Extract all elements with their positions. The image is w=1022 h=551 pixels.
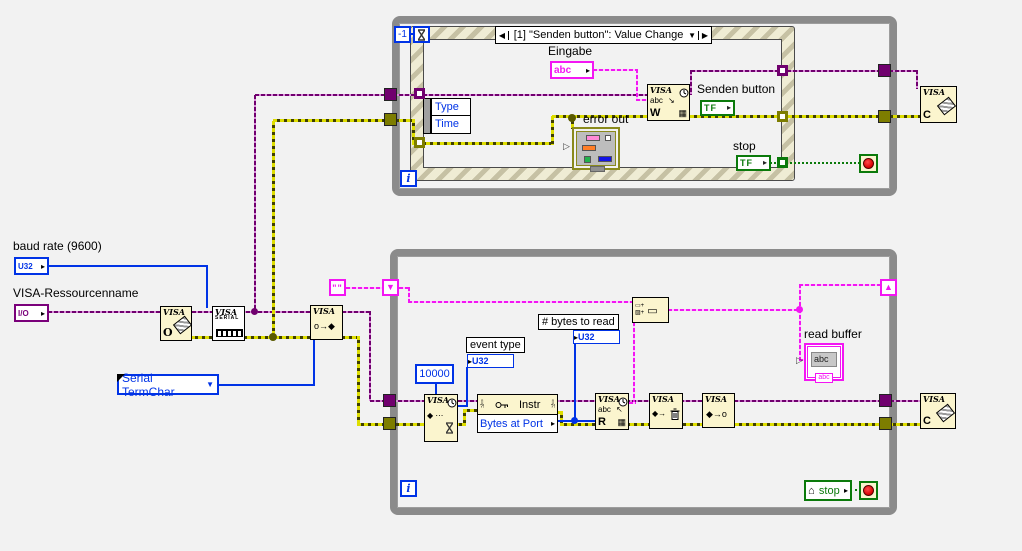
string-type-tag: abc	[815, 373, 833, 383]
visa-label: VISA	[313, 306, 335, 316]
event-data-type[interactable]: Type	[432, 99, 470, 116]
termchar-enum-value: Serial TermChar	[122, 371, 206, 399]
timeout-value: -1	[398, 29, 407, 40]
eingabe-terminal[interactable]: abc ▸	[550, 61, 594, 79]
dip-switch-icon	[216, 329, 243, 337]
stop-label: stop	[733, 140, 756, 153]
cluster-field-icon	[598, 156, 612, 162]
labview-block-diagram: ▼ ▲ baud rate (9600) U32 ▸ VISA-Ressourc…	[0, 0, 1022, 551]
dropdown-icon: ▼	[206, 380, 214, 389]
cluster-field-icon	[605, 135, 611, 141]
visa-wire	[254, 95, 256, 312]
read-buffer-label: read buffer	[804, 328, 862, 341]
left-arrow-out-icon: ▷	[563, 141, 570, 152]
numeric-wire	[48, 265, 207, 267]
event-tunnel-visa[interactable]	[777, 65, 788, 76]
clock-icon	[679, 85, 689, 95]
shift-register-left[interactable]: ▼	[382, 279, 399, 296]
string-wire	[799, 284, 880, 286]
concat-inputs-icon: ▭+▨+	[633, 303, 644, 317]
visa-close-node-top[interactable]: VISA C	[920, 86, 957, 123]
output-arrow-icon: ▸	[763, 159, 767, 167]
output-arrow-icon: ▸	[844, 486, 848, 495]
baud-rate-terminal[interactable]: U32 ▸	[14, 257, 49, 275]
tunnel-error[interactable]	[878, 110, 891, 123]
close-letter: C	[923, 109, 931, 121]
tunnel-error[interactable]	[383, 417, 396, 430]
event-timeout-terminal[interactable]	[413, 26, 430, 43]
stop-sign-icon	[863, 485, 874, 496]
timeout-constant[interactable]: -1	[394, 26, 411, 43]
error-wire	[463, 409, 478, 412]
property-class-label: Instr	[519, 399, 540, 411]
tunnel-visa[interactable]	[879, 394, 892, 407]
visa-label: VISA	[163, 307, 185, 317]
eingabe-label: Eingabe	[548, 45, 592, 58]
clock-icon	[447, 395, 457, 405]
error-wire	[412, 142, 553, 145]
constant-fold-icon	[117, 374, 125, 382]
error-wire	[272, 121, 275, 337]
visa-label: VISA	[598, 394, 620, 404]
loop-condition-terminal[interactable]	[859, 154, 878, 173]
event-tunnel-error[interactable]	[777, 111, 788, 122]
empty-string-constant[interactable]: ""	[329, 279, 346, 296]
visa-wait-on-event-node[interactable]: VISA ◆ ⋯	[424, 394, 458, 442]
shift-reg-down-icon: ▼	[386, 282, 395, 292]
key-icon	[495, 401, 509, 409]
visa-wire	[690, 70, 692, 95]
event-type-label: event type	[466, 337, 525, 353]
visa-unmap-events-node[interactable]: VISA ◆→o	[702, 393, 735, 428]
visa-write-node[interactable]: VISA abc ↘ W ▦	[647, 84, 690, 121]
house-icon: ⌂	[808, 485, 815, 497]
left-arrow-out-icon: ▷	[796, 355, 803, 366]
error-out-cluster[interactable]	[572, 127, 620, 170]
serial-label: SERIAL	[215, 315, 239, 321]
write-string-glyph: abc	[650, 96, 663, 105]
visa-resource-terminal[interactable]: I/O ▸	[14, 304, 49, 322]
event-case-label[interactable]: [1] "Senden button": Value Change	[509, 29, 688, 41]
error-in-icon: ▯?!	[480, 400, 484, 410]
senden-button-terminal[interactable]: TF▸	[700, 100, 735, 116]
read-buffer-text: abc	[811, 352, 837, 367]
visa-wire	[369, 311, 371, 401]
iteration-terminal[interactable]: i	[400, 480, 417, 497]
numeric-wire	[574, 342, 576, 422]
event-case-selector[interactable]: ◀ [1] "Senden button": Value Change ▼ ▶	[495, 26, 712, 44]
event-data-node-spine	[423, 98, 431, 134]
visa-label: VISA	[427, 395, 449, 405]
concat-output-icon: ▭	[647, 304, 657, 317]
numeric-wire	[457, 405, 468, 407]
grid-icon: ▦	[617, 417, 626, 428]
tunnel-visa[interactable]	[878, 64, 891, 77]
write-letter: W	[650, 107, 660, 119]
numeric-wire	[206, 265, 208, 308]
visa-read-node[interactable]: VISA abc ↖ R ▦	[595, 393, 629, 430]
wire-junction	[571, 417, 578, 424]
error-out-icon: ▯?!	[551, 400, 555, 410]
output-arrow-icon: ▸	[41, 309, 45, 318]
open-book-icon	[173, 316, 192, 335]
visa-open-node[interactable]: VISA O	[160, 306, 192, 341]
shift-register-right[interactable]: ▲	[880, 279, 897, 296]
visa-label: VISA	[705, 394, 727, 404]
output-arrow-icon: ▸	[551, 419, 555, 428]
stop-terminal[interactable]: TF▸	[736, 155, 771, 171]
tunnel-visa[interactable]	[383, 394, 396, 407]
error-wire	[273, 119, 393, 122]
stop-local-variable[interactable]: ⌂ stop ▸	[804, 480, 852, 501]
error-out-label: error out	[583, 113, 628, 126]
cluster-field-icon	[584, 156, 591, 163]
grid-icon: ▦	[678, 108, 687, 119]
event-tunnel-visa[interactable]	[414, 88, 425, 99]
event-data-time[interactable]: Time	[432, 116, 470, 133]
tunnel-visa[interactable]	[384, 88, 397, 101]
string-wire	[346, 287, 383, 289]
visa-close-node-bottom[interactable]: VISA C	[920, 393, 956, 429]
visa-enable-event-node[interactable]: VISA o→◆	[310, 305, 343, 340]
bytes-to-read-indicator[interactable]: ▸ U32	[573, 330, 620, 344]
numeric-wire	[218, 384, 315, 386]
wire-junction	[269, 333, 277, 341]
bytes-to-read-label: # bytes to read	[538, 314, 619, 330]
u32-type-label: U32	[18, 262, 33, 271]
visa-wire	[916, 70, 918, 89]
shift-reg-up-icon: ▲	[884, 282, 893, 292]
event-tunnel-error[interactable]	[414, 137, 425, 148]
hourglass-icon	[417, 29, 426, 41]
visa-label: VISA	[923, 87, 945, 97]
baud-rate-label: baud rate (9600)	[13, 240, 102, 253]
wait-event-icon: ◆ ⋯	[427, 411, 443, 420]
event-tunnel-boolean[interactable]	[777, 157, 788, 168]
event-type-indicator[interactable]: ▸ U32	[467, 354, 514, 368]
iteration-terminal[interactable]: i	[400, 170, 417, 187]
tunnel-error[interactable]	[384, 113, 397, 126]
event-data-node[interactable]: Type Time	[431, 98, 471, 134]
loop-condition-terminal[interactable]	[859, 481, 878, 500]
concatenate-strings-node[interactable]: ▭+▨+ ▭	[632, 297, 669, 323]
clock-icon	[618, 394, 628, 404]
senden-button-label: Senden button	[697, 83, 775, 96]
visa-discard-events-node[interactable]: VISA ◆→	[649, 393, 683, 429]
open-letter: O	[163, 326, 173, 339]
property-node[interactable]: ▯?! Instr ▯?! Bytes at Port ▸	[477, 394, 558, 433]
read-string-glyph: abc	[598, 405, 611, 414]
close-letter: C	[923, 415, 931, 427]
property-item-label[interactable]: Bytes at Port	[480, 418, 543, 430]
close-book-icon	[937, 97, 956, 116]
hourglass-icon	[445, 421, 454, 439]
string-wire	[636, 69, 638, 101]
stop-sign-icon	[863, 158, 874, 169]
visa-resource-label: VISA-Ressourcenname	[13, 287, 138, 300]
cluster-field-icon	[586, 135, 600, 141]
write-arrow-icon: ↘	[668, 96, 675, 105]
string-wire	[408, 301, 633, 303]
visa-label: VISA	[652, 394, 674, 404]
visa-wire	[255, 94, 647, 96]
read-letter: R	[598, 416, 606, 428]
string-type-label: abc	[554, 65, 571, 76]
read-buffer-indicator[interactable]: abc abc	[804, 343, 844, 381]
tunnel-error[interactable]	[879, 417, 892, 430]
string-wire	[668, 309, 801, 311]
output-arrow-icon: ▸	[41, 262, 45, 271]
dropdown-icon[interactable]: ▼	[688, 31, 696, 40]
trash-icon	[670, 408, 680, 426]
unmap-event-icon: ◆→o	[706, 409, 727, 420]
error-wire	[357, 336, 360, 426]
cluster-field-icon	[582, 145, 596, 151]
error-wire	[551, 116, 554, 145]
visa-configure-serial-node[interactable]: VISA SERIAL	[212, 306, 245, 341]
visa-label: VISA	[650, 85, 672, 95]
discard-event-icon: ◆→	[652, 409, 666, 418]
string-wire	[593, 69, 638, 71]
string-wire	[629, 402, 636, 404]
string-wire	[633, 316, 635, 404]
timeout-10000-constant[interactable]: 10000	[415, 364, 454, 384]
serial-termchar-enum[interactable]: Serial TermChar ▼	[117, 374, 219, 395]
string-wire	[799, 309, 801, 361]
wire-junction	[568, 114, 576, 122]
case-prev-icon[interactable]: ◀	[496, 31, 509, 40]
output-arrow-icon: ▸	[586, 66, 590, 75]
enable-event-icon: o→◆	[314, 321, 335, 332]
close-book-icon	[936, 404, 955, 423]
numeric-wire	[466, 367, 468, 407]
case-next-icon[interactable]: ▶	[698, 31, 711, 40]
visa-label: VISA	[923, 394, 945, 404]
output-arrow-icon: ▸	[727, 104, 731, 112]
wire-junction	[251, 308, 258, 315]
wire-junction	[796, 306, 803, 313]
io-type-label: I/O	[18, 309, 29, 318]
numeric-wire	[313, 340, 315, 386]
cluster-connector-icon	[590, 166, 605, 172]
